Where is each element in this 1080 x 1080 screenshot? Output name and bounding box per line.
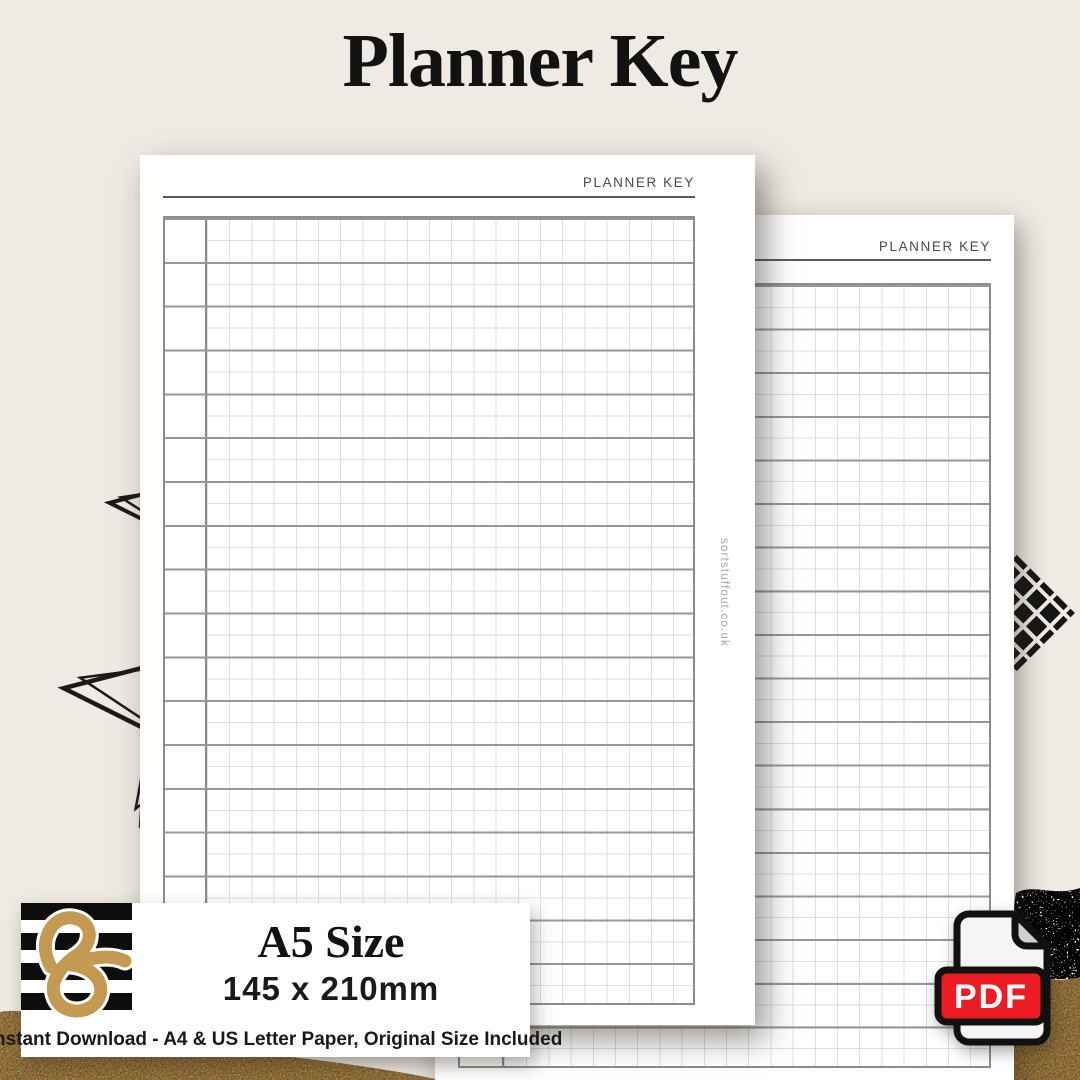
brand-logo <box>21 903 132 1023</box>
header-rule <box>163 196 695 198</box>
planner-header: PLANNER KEY <box>583 175 695 190</box>
size-box: A5 Size 145 x 210mm <box>132 903 530 1023</box>
size-label: A5 Size <box>258 919 405 965</box>
product-listing-image: Planner Key <box>0 0 1080 1080</box>
brand-logo-glyph-icon <box>21 903 132 1023</box>
row-separators <box>165 218 693 1003</box>
pdf-fold-corner <box>1015 914 1047 946</box>
download-note: Instant Download - A4 & US Letter Paper,… <box>21 1023 530 1057</box>
size-badge-top: A5 Size 145 x 210mm <box>21 903 530 1023</box>
pdf-label: PDF <box>954 978 1028 1016</box>
planner-page-front: PLANNER KEY sortstuffout.co.uk <box>140 155 755 1025</box>
planner-header: PLANNER KEY <box>879 239 991 254</box>
site-watermark: sortstuffout.co.uk <box>718 538 730 658</box>
pdf-icon: PDF <box>933 908 1059 1061</box>
planner-table <box>163 216 695 1005</box>
size-dimensions: 145 x 210mm <box>223 970 440 1008</box>
size-badge: A5 Size 145 x 210mm Instant Download - A… <box>21 903 530 1057</box>
